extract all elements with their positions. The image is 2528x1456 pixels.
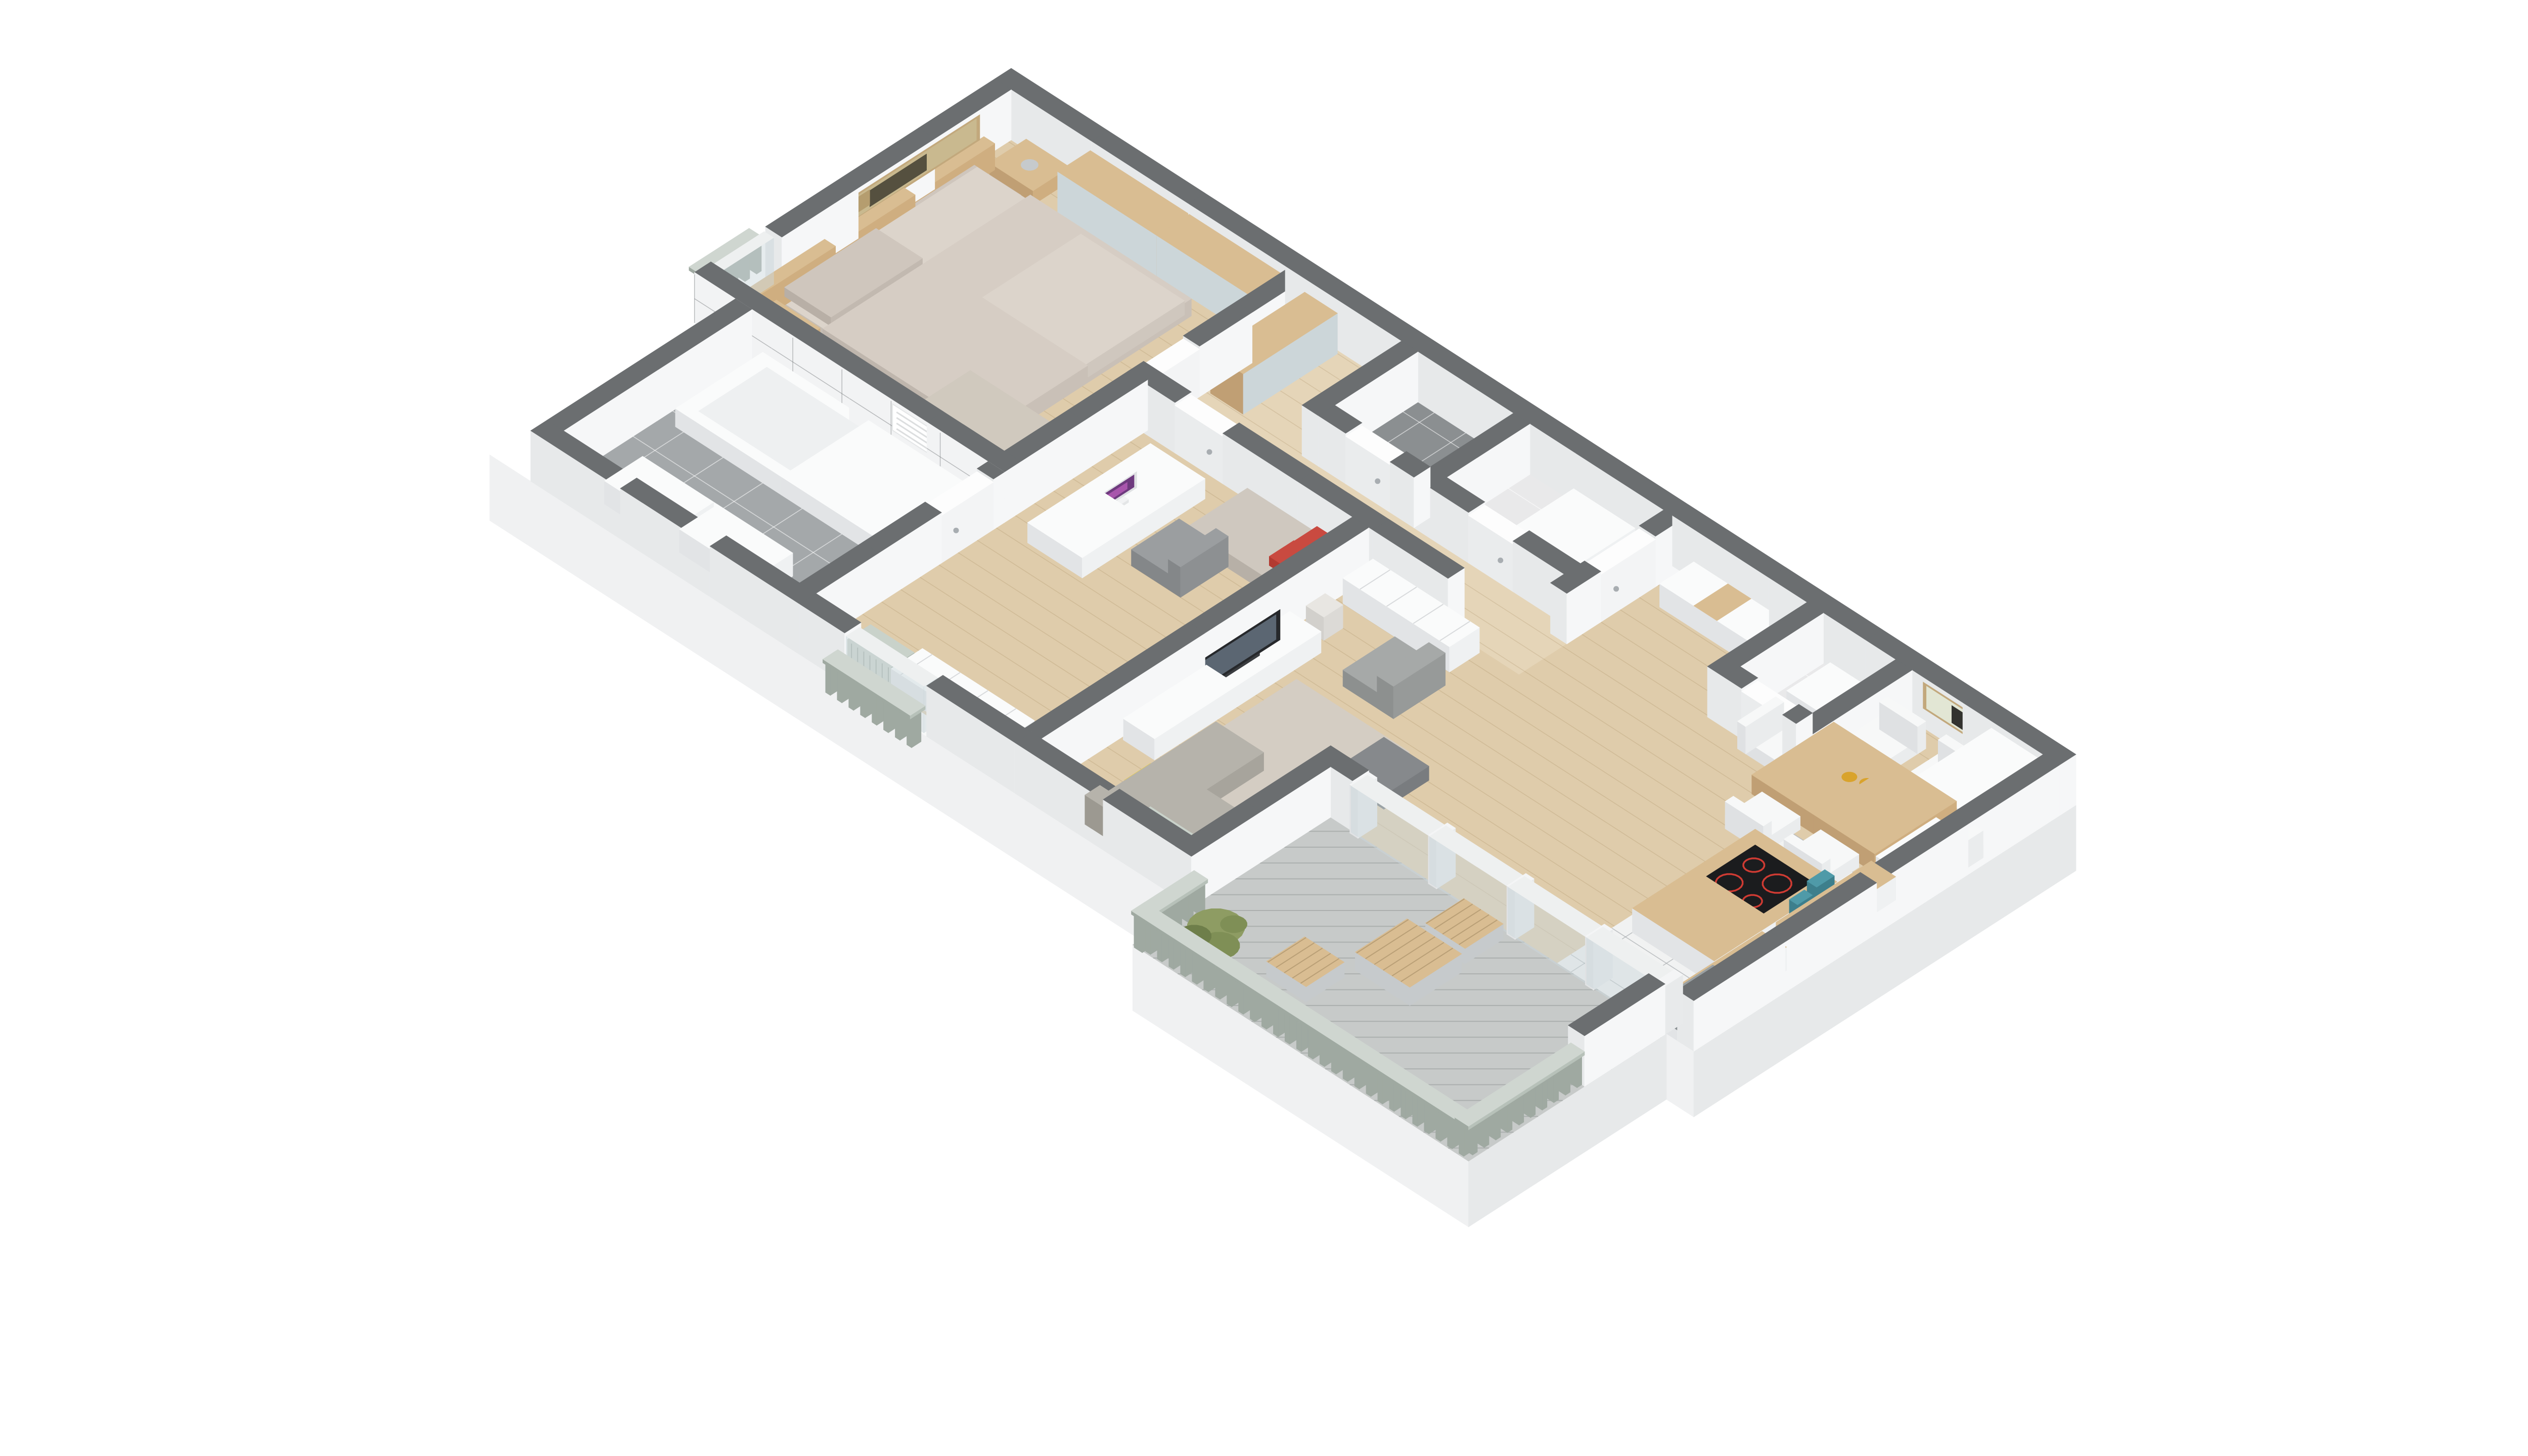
dining-mug-1 [1842,772,1857,782]
door-handle [1375,478,1380,484]
shower-front-wall-b [1390,451,1430,528]
door-handle [954,528,959,533]
door-handle [1498,558,1503,563]
door-handle [1207,449,1212,455]
door-handle [1613,586,1619,591]
bedside-lamp-left [1021,159,1039,170]
floor-plan-page [0,0,2528,1456]
floor-plan-3d-render [0,0,2528,1456]
